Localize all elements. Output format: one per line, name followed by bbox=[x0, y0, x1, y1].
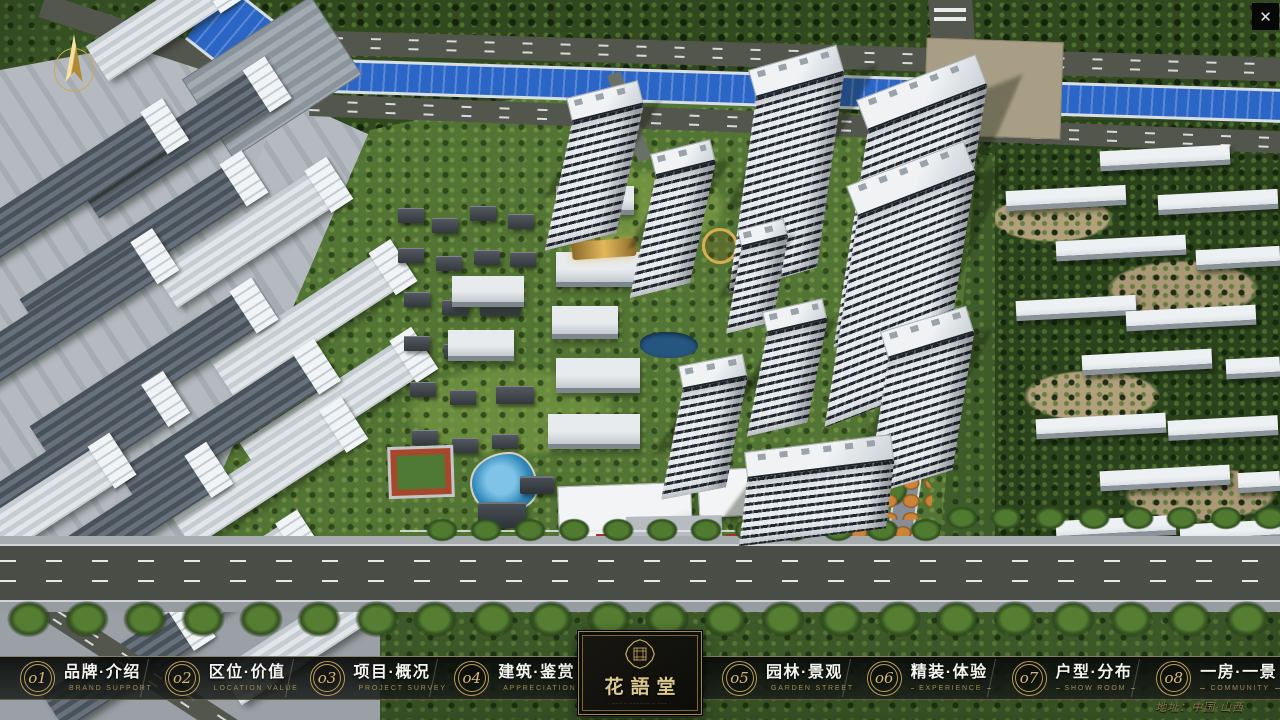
menu-number-badge: o2 bbox=[165, 661, 200, 696]
courtyard-house bbox=[398, 248, 424, 263]
menu-item-location-value[interactable]: o2 区位·价值 LOCATION VALUE bbox=[145, 657, 289, 699]
courtyard-house bbox=[404, 336, 430, 351]
low-rise-block bbox=[552, 306, 618, 339]
courtyard-house bbox=[508, 214, 534, 229]
menu-item-architecture[interactable]: o4 建筑·鉴赏 APPRECIATION bbox=[434, 657, 578, 699]
address-label: 地址：中国·山西 bbox=[1155, 699, 1244, 715]
low-rise-block bbox=[448, 330, 514, 361]
logo-tagline: · ─── ─ ────── ─ ─── · bbox=[608, 701, 672, 705]
courtyard-house bbox=[412, 430, 438, 445]
pond bbox=[640, 332, 698, 358]
menu-number-badge: o5 bbox=[722, 661, 757, 696]
courtyard-house bbox=[410, 382, 436, 397]
courtyard-house bbox=[452, 438, 478, 453]
low-rise-block bbox=[452, 276, 524, 307]
menu-item-unit-layout[interactable]: o7 户型·分布 SHOW ROOM bbox=[992, 657, 1136, 699]
courtyard-house bbox=[404, 292, 430, 307]
menu-number-badge: o8 bbox=[1156, 661, 1191, 696]
gate-pavilion bbox=[520, 476, 554, 494]
menu-number-badge: o1 bbox=[20, 661, 55, 696]
courtyard-house bbox=[436, 256, 462, 271]
menu-item-interior-experience[interactable]: o6 精装·体验 EXPERIENCE bbox=[847, 657, 991, 699]
menu-item-label: 品牌·介绍 bbox=[64, 664, 144, 682]
menu-right-group: o5 园林·景观 GARDEN STREET o6 精装·体验 EXPERIEN… bbox=[702, 657, 1280, 699]
courtyard-house bbox=[450, 390, 476, 405]
courtyard-house bbox=[496, 386, 534, 404]
menu-item-project-overview[interactable]: o3 项目·概况 PROJECT SURVEY bbox=[290, 657, 434, 699]
menu-number-badge: o7 bbox=[1012, 661, 1047, 696]
east-rowhouse bbox=[1226, 357, 1280, 380]
menu-item-label: 园林·景观 bbox=[766, 664, 846, 682]
menu-item-label: 一房·一景 bbox=[1200, 664, 1280, 682]
menu-number-badge: o4 bbox=[454, 661, 489, 696]
menu-item-label: 区位·价值 bbox=[209, 664, 289, 682]
low-rise-block bbox=[556, 358, 640, 393]
menu-item-sublabel: COMMUNITY bbox=[1200, 685, 1280, 692]
menu-item-sublabel: SHOW ROOM bbox=[1056, 685, 1136, 692]
menu-item-room-view[interactable]: o8 一房·一景 COMMUNITY bbox=[1136, 657, 1280, 699]
close-button[interactable]: ✕ bbox=[1252, 3, 1279, 30]
site-plan-view[interactable] bbox=[0, 0, 1280, 720]
menu-number-badge: o3 bbox=[310, 661, 345, 696]
courtyard-house bbox=[474, 250, 500, 265]
menu-item-brand-intro[interactable]: o1 品牌·介绍 BRAND SUPPORT bbox=[0, 657, 144, 699]
logo-title: 花語堂 bbox=[597, 672, 682, 699]
menu-item-label: 项目·概况 bbox=[354, 664, 434, 682]
courtyard-house bbox=[432, 218, 458, 233]
menu-item-label: 精装·体验 bbox=[911, 664, 991, 682]
courtyard-house bbox=[398, 208, 424, 223]
courtyard-house bbox=[510, 252, 536, 267]
menu-item-sublabel: PROJECT SURVEY bbox=[354, 685, 434, 692]
low-rise-block bbox=[548, 414, 640, 449]
menu-item-label: 建筑·鉴赏 bbox=[498, 664, 578, 682]
menu-item-sublabel: LOCATION VALUE bbox=[209, 685, 289, 692]
menu-left-group: o1 品牌·介绍 BRAND SUPPORT o2 区位·价值 LOCATION… bbox=[0, 657, 578, 699]
logo-seal-icon bbox=[625, 639, 655, 669]
menu-item-sublabel: GARDEN STREET bbox=[766, 685, 846, 692]
menu-item-label: 户型·分布 bbox=[1056, 664, 1136, 682]
menu-item-sublabel: APPRECIATION bbox=[498, 685, 578, 692]
street-trees bbox=[940, 502, 1280, 542]
courtyard-house bbox=[470, 206, 496, 221]
menu-item-landscape[interactable]: o5 园林·景观 GARDEN STREET bbox=[702, 657, 846, 699]
compass-icon bbox=[50, 34, 98, 96]
sales-presentation-window: ✕ o1 品牌·介绍 BRAND SUPPORT o2 区位·价值 LOCATI… bbox=[0, 0, 1280, 720]
residential-tower bbox=[762, 298, 849, 427]
menu-item-sublabel: EXPERIENCE bbox=[911, 685, 991, 692]
logo-panel[interactable]: 花語堂 · ─── ─ ────── ─ ─── · bbox=[578, 631, 702, 715]
crosswalk bbox=[934, 8, 966, 24]
residential-tower bbox=[880, 306, 1011, 479]
commercial-block bbox=[744, 434, 902, 544]
menu-item-sublabel: BRAND SUPPORT bbox=[64, 685, 144, 692]
playground bbox=[387, 445, 455, 499]
east-rowhouse bbox=[1238, 471, 1280, 493]
courtyard-house bbox=[492, 434, 518, 449]
menu-number-badge: o6 bbox=[867, 661, 902, 696]
